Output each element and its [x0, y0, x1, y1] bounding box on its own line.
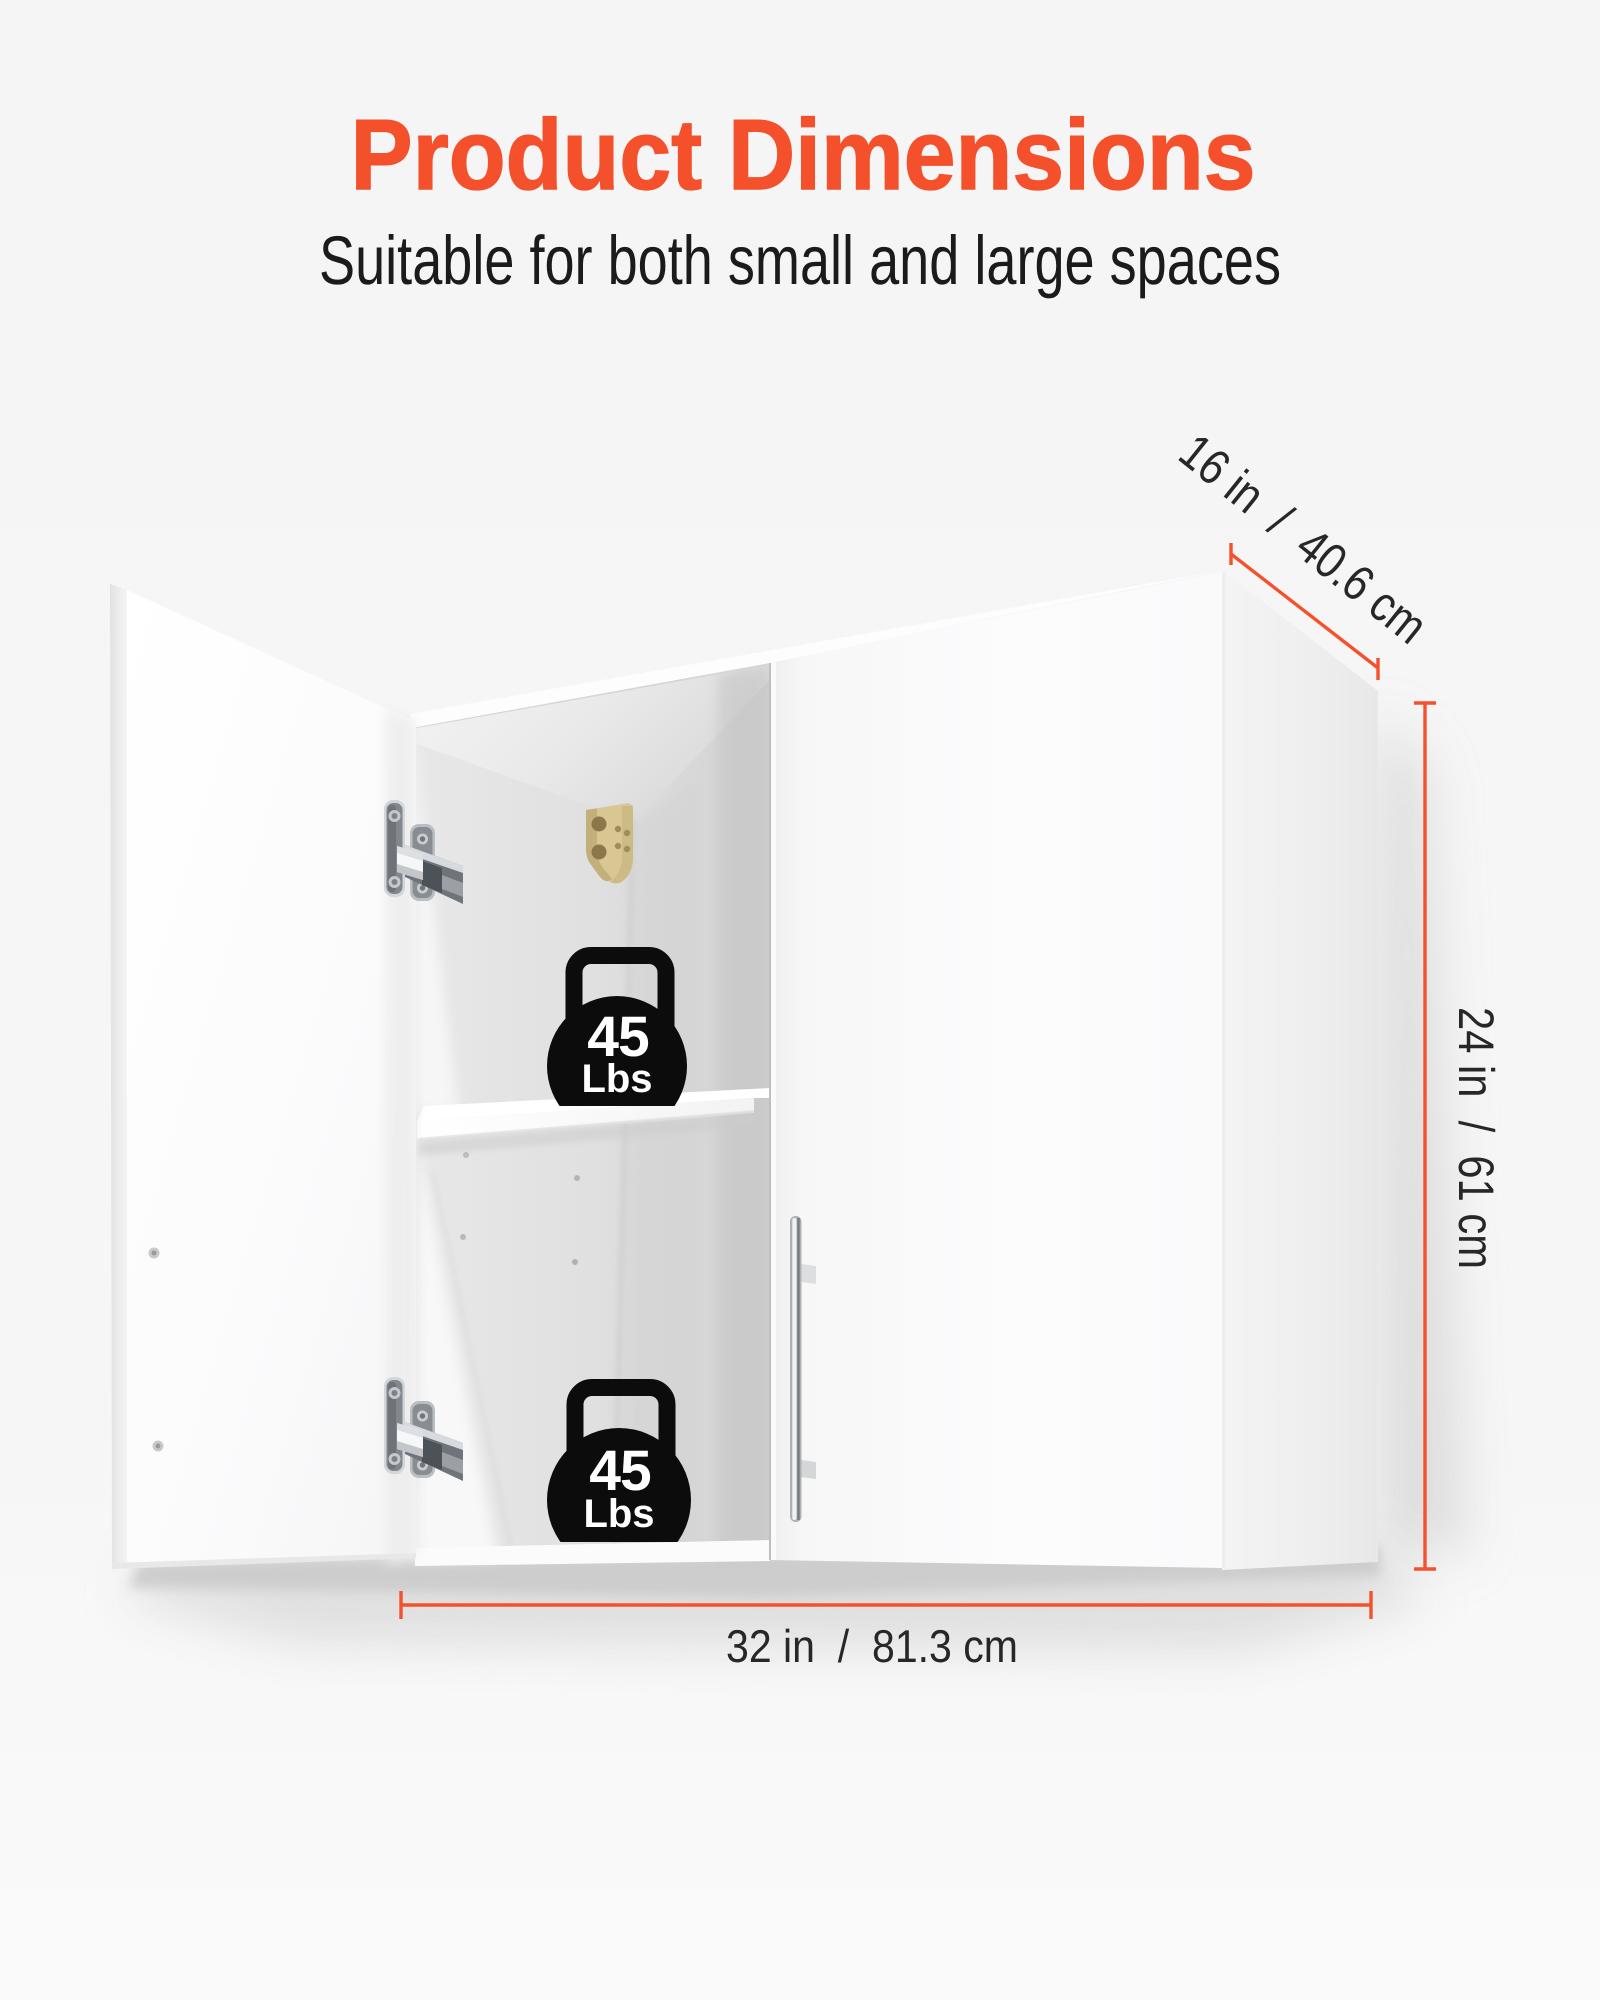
svg-text:24 in / 61 cm: 24 in / 61 cm [1448, 1007, 1504, 1269]
svg-text:Lbs: Lbs [583, 1492, 654, 1536]
svg-text:Lbs: Lbs [581, 1057, 652, 1101]
svg-text:32 in / 81.3 cm: 32 in / 81.3 cm [726, 1620, 1018, 1672]
svg-text:Product Dimensions: Product Dimensions [351, 99, 1256, 211]
svg-text:Suitable for both small and la: Suitable for both small and large spaces [319, 222, 1281, 299]
